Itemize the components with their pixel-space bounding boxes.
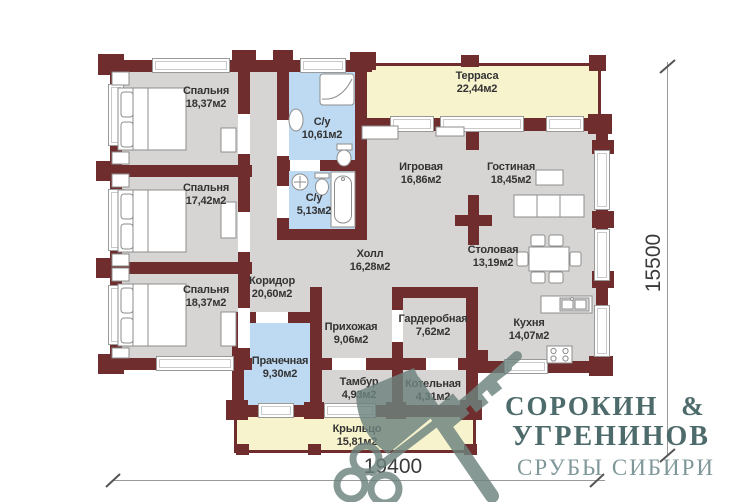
room-label-wardrobe: Гардеробная7,62м2 bbox=[399, 313, 468, 339]
room-area: 14,07м2 bbox=[509, 330, 549, 343]
wall bbox=[110, 165, 252, 177]
room-name: С/у bbox=[297, 192, 331, 205]
wall bbox=[110, 262, 252, 274]
log-end bbox=[589, 356, 613, 376]
log-end bbox=[350, 52, 376, 70]
room-label-vestibule: Тамбур4,93м2 bbox=[340, 376, 379, 402]
door-opening bbox=[332, 358, 366, 370]
room-name: Прихожая bbox=[325, 321, 378, 334]
log-end bbox=[468, 350, 488, 366]
room-area: 18,45м2 bbox=[487, 174, 535, 187]
door-opening bbox=[238, 308, 250, 348]
logo-line-1: СОРОКИН & bbox=[505, 391, 706, 422]
window bbox=[594, 229, 610, 281]
log-end bbox=[96, 161, 112, 181]
wall bbox=[310, 287, 322, 417]
log-end bbox=[304, 402, 324, 419]
log-end bbox=[226, 400, 248, 420]
room-area: 13,19м2 bbox=[468, 257, 519, 270]
room-label-bedroom-2: Спальня17,42м2 bbox=[183, 182, 229, 208]
room-area: 16,86м2 bbox=[399, 174, 443, 187]
room-label-bedroom-3: Спальня18,37м2 bbox=[183, 284, 229, 310]
log-end bbox=[589, 55, 606, 71]
entry-door bbox=[324, 403, 376, 418]
room-area: 20,60м2 bbox=[249, 288, 295, 301]
room-area: 16,28м2 bbox=[350, 261, 390, 274]
door-opening bbox=[277, 120, 289, 156]
window bbox=[152, 58, 230, 73]
room-label-living-room: Гостиная18,45м2 bbox=[487, 161, 535, 187]
logo-line-2: УГРЕНИНОВ bbox=[512, 421, 710, 453]
window bbox=[440, 116, 524, 132]
dimension-height: 15500 bbox=[642, 234, 666, 292]
room-label-boiler-room: Котельная4,31м2 bbox=[405, 378, 461, 404]
window bbox=[258, 403, 294, 418]
room-label-bedroom-1: Спальня18,37м2 bbox=[183, 85, 229, 111]
room-name: Игровая bbox=[399, 161, 443, 174]
room-label-terrace: Терраса22,44м2 bbox=[456, 70, 499, 96]
room-name: Крыльцо bbox=[333, 423, 382, 436]
door-opening bbox=[290, 160, 320, 171]
room-name: Холл bbox=[350, 248, 390, 261]
window bbox=[594, 150, 610, 210]
room-area: 17,42м2 bbox=[183, 195, 229, 208]
window bbox=[546, 116, 584, 132]
room-area: 22,44м2 bbox=[456, 83, 499, 96]
door-opening bbox=[238, 114, 250, 154]
room-area: 9,06м2 bbox=[325, 334, 378, 347]
window bbox=[156, 356, 234, 371]
window bbox=[108, 285, 124, 345]
room-name: Гардеробная bbox=[399, 313, 468, 326]
room-area: 9,30м2 bbox=[252, 368, 308, 381]
log-end bbox=[273, 50, 293, 66]
window bbox=[108, 189, 124, 251]
room-label-bathroom-1: С/у10,61м2 bbox=[302, 116, 342, 142]
log-end bbox=[96, 258, 112, 278]
room-label-corridor: Коридор20,60м2 bbox=[249, 275, 295, 301]
room-area: 5,13м2 bbox=[297, 205, 331, 218]
window bbox=[300, 58, 346, 73]
porch-post bbox=[464, 444, 477, 455]
window bbox=[390, 116, 434, 132]
room-name: Спальня bbox=[183, 182, 229, 195]
room-name: Прачечная bbox=[252, 355, 308, 368]
room-area: 4,31м2 bbox=[405, 391, 461, 404]
room-name: Терраса bbox=[456, 70, 499, 83]
room-area: 7,62м2 bbox=[399, 326, 468, 339]
room-label-dining-room: Столовая13,19м2 bbox=[468, 244, 519, 270]
room-name: Гостиная bbox=[487, 161, 535, 174]
room-area: 18,37м2 bbox=[183, 297, 229, 310]
log-end bbox=[232, 50, 256, 66]
wall bbox=[392, 287, 403, 417]
wall bbox=[455, 215, 492, 226]
log-end bbox=[386, 402, 406, 419]
room-name: Спальня bbox=[183, 85, 229, 98]
log-end bbox=[461, 55, 479, 67]
room-name: Коридор bbox=[249, 275, 295, 288]
log-end bbox=[460, 400, 482, 420]
porch-post bbox=[308, 444, 321, 455]
door-opening bbox=[426, 358, 458, 370]
room-name: Кухня bbox=[509, 317, 549, 330]
log-end bbox=[588, 114, 612, 134]
room-label-entry-hall: Прихожая9,06м2 bbox=[325, 321, 378, 347]
window bbox=[504, 359, 548, 374]
room-label-playroom: Игровая16,86м2 bbox=[399, 161, 443, 187]
window bbox=[108, 84, 124, 146]
door-opening bbox=[238, 212, 250, 252]
log-end bbox=[98, 54, 124, 75]
room-label-hall: Холл16,28м2 bbox=[350, 248, 390, 274]
room-area: 10,61м2 bbox=[302, 129, 342, 142]
room-name: Столовая bbox=[468, 244, 519, 257]
log-end bbox=[98, 354, 124, 374]
door-opening bbox=[256, 312, 288, 323]
wall bbox=[355, 72, 367, 240]
room-area: 15,81м2 bbox=[333, 436, 382, 449]
room-name: Спальня bbox=[183, 284, 229, 297]
room-area: 18,37м2 bbox=[183, 98, 229, 111]
dimension-width: 19400 bbox=[364, 455, 422, 479]
room-name: С/у bbox=[302, 116, 342, 129]
room-name: Котельная bbox=[405, 378, 461, 391]
porch-post bbox=[236, 444, 249, 455]
log-end bbox=[592, 211, 614, 228]
logo-line-3: СРУБЫ СИБИРИ bbox=[517, 455, 715, 481]
room-label-kitchen: Кухня14,07м2 bbox=[509, 317, 549, 343]
room-name: Тамбур bbox=[340, 376, 379, 389]
room-label-bathroom-2: С/у5,13м2 bbox=[297, 192, 331, 218]
room-label-laundry: Прачечная9,30м2 bbox=[252, 355, 308, 381]
room-area: 4,93м2 bbox=[340, 389, 379, 402]
wall bbox=[277, 229, 367, 240]
room-label-porch: Крыльцо15,81м2 bbox=[333, 423, 382, 449]
door-opening bbox=[277, 186, 289, 218]
floor-plan: Спальня18,37м2 С/у10,61м2 Терраса22,44м2… bbox=[0, 0, 753, 502]
window bbox=[594, 305, 610, 357]
